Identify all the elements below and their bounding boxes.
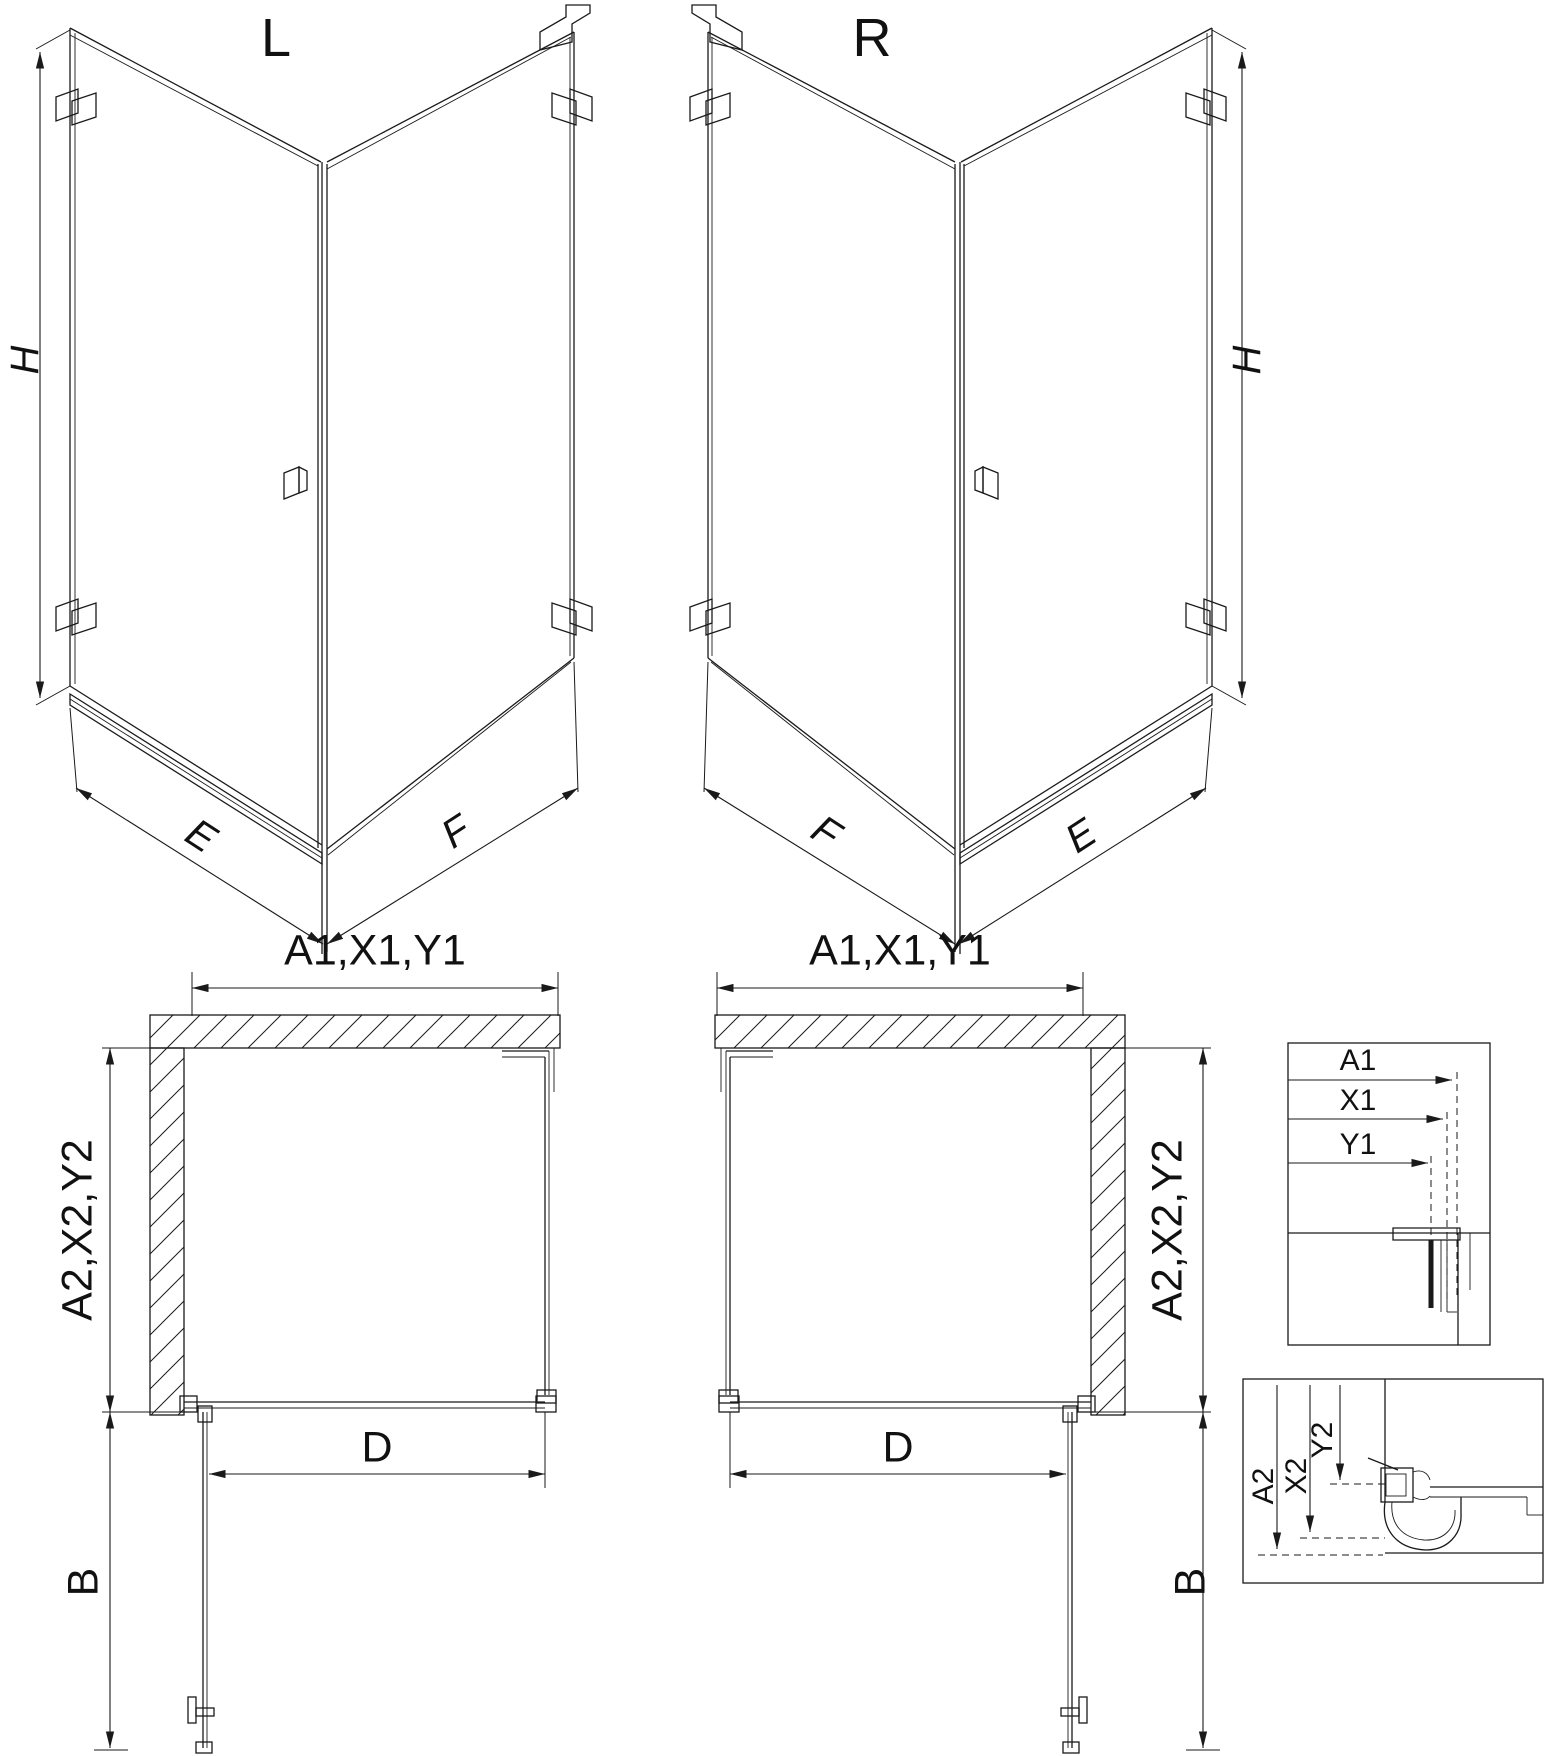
technical-drawing-page: L H E F R H F E A1,X1,Y1 A2,X2,Y2 D B A1… (0, 0, 1561, 1756)
detail-depth-ref-y2: Y2 (1308, 1422, 1338, 1459)
plan-right-width-dim: A1,X1,Y1 (809, 930, 991, 973)
plan-left-width-dim: A1,X1,Y1 (284, 930, 466, 973)
plan-left-swing-dim: B (63, 1568, 106, 1597)
shower-enclosure-diagram (0, 0, 1561, 1756)
plan-right-door-dim: D (882, 1427, 913, 1470)
iso-left-height-label: H (5, 346, 45, 375)
plan-view-right (715, 972, 1220, 1753)
iso-left-title: L (261, 11, 291, 65)
plan-right-swing-dim: B (1170, 1568, 1213, 1597)
iso-view-left (36, 5, 592, 954)
detail-width-ref-y1: Y1 (1340, 1130, 1377, 1160)
iso-right-title: R (853, 11, 892, 65)
detail-depth-ref-x2: X2 (1282, 1458, 1312, 1495)
detail-width-ref-x1: X1 (1340, 1086, 1377, 1116)
detail-width-ref-a1: A1 (1340, 1046, 1377, 1076)
detail-depth-ref-a2: A2 (1249, 1468, 1279, 1505)
plan-view-left (94, 972, 560, 1753)
iso-right-height-label: H (1227, 346, 1267, 375)
iso-view-right (690, 5, 1246, 954)
detail-box-width (1288, 1043, 1490, 1345)
plan-right-depth-dim: A2,X2,Y2 (1147, 1139, 1190, 1321)
plan-left-door-dim: D (361, 1427, 392, 1470)
plan-left-depth-dim: A2,X2,Y2 (57, 1139, 100, 1321)
